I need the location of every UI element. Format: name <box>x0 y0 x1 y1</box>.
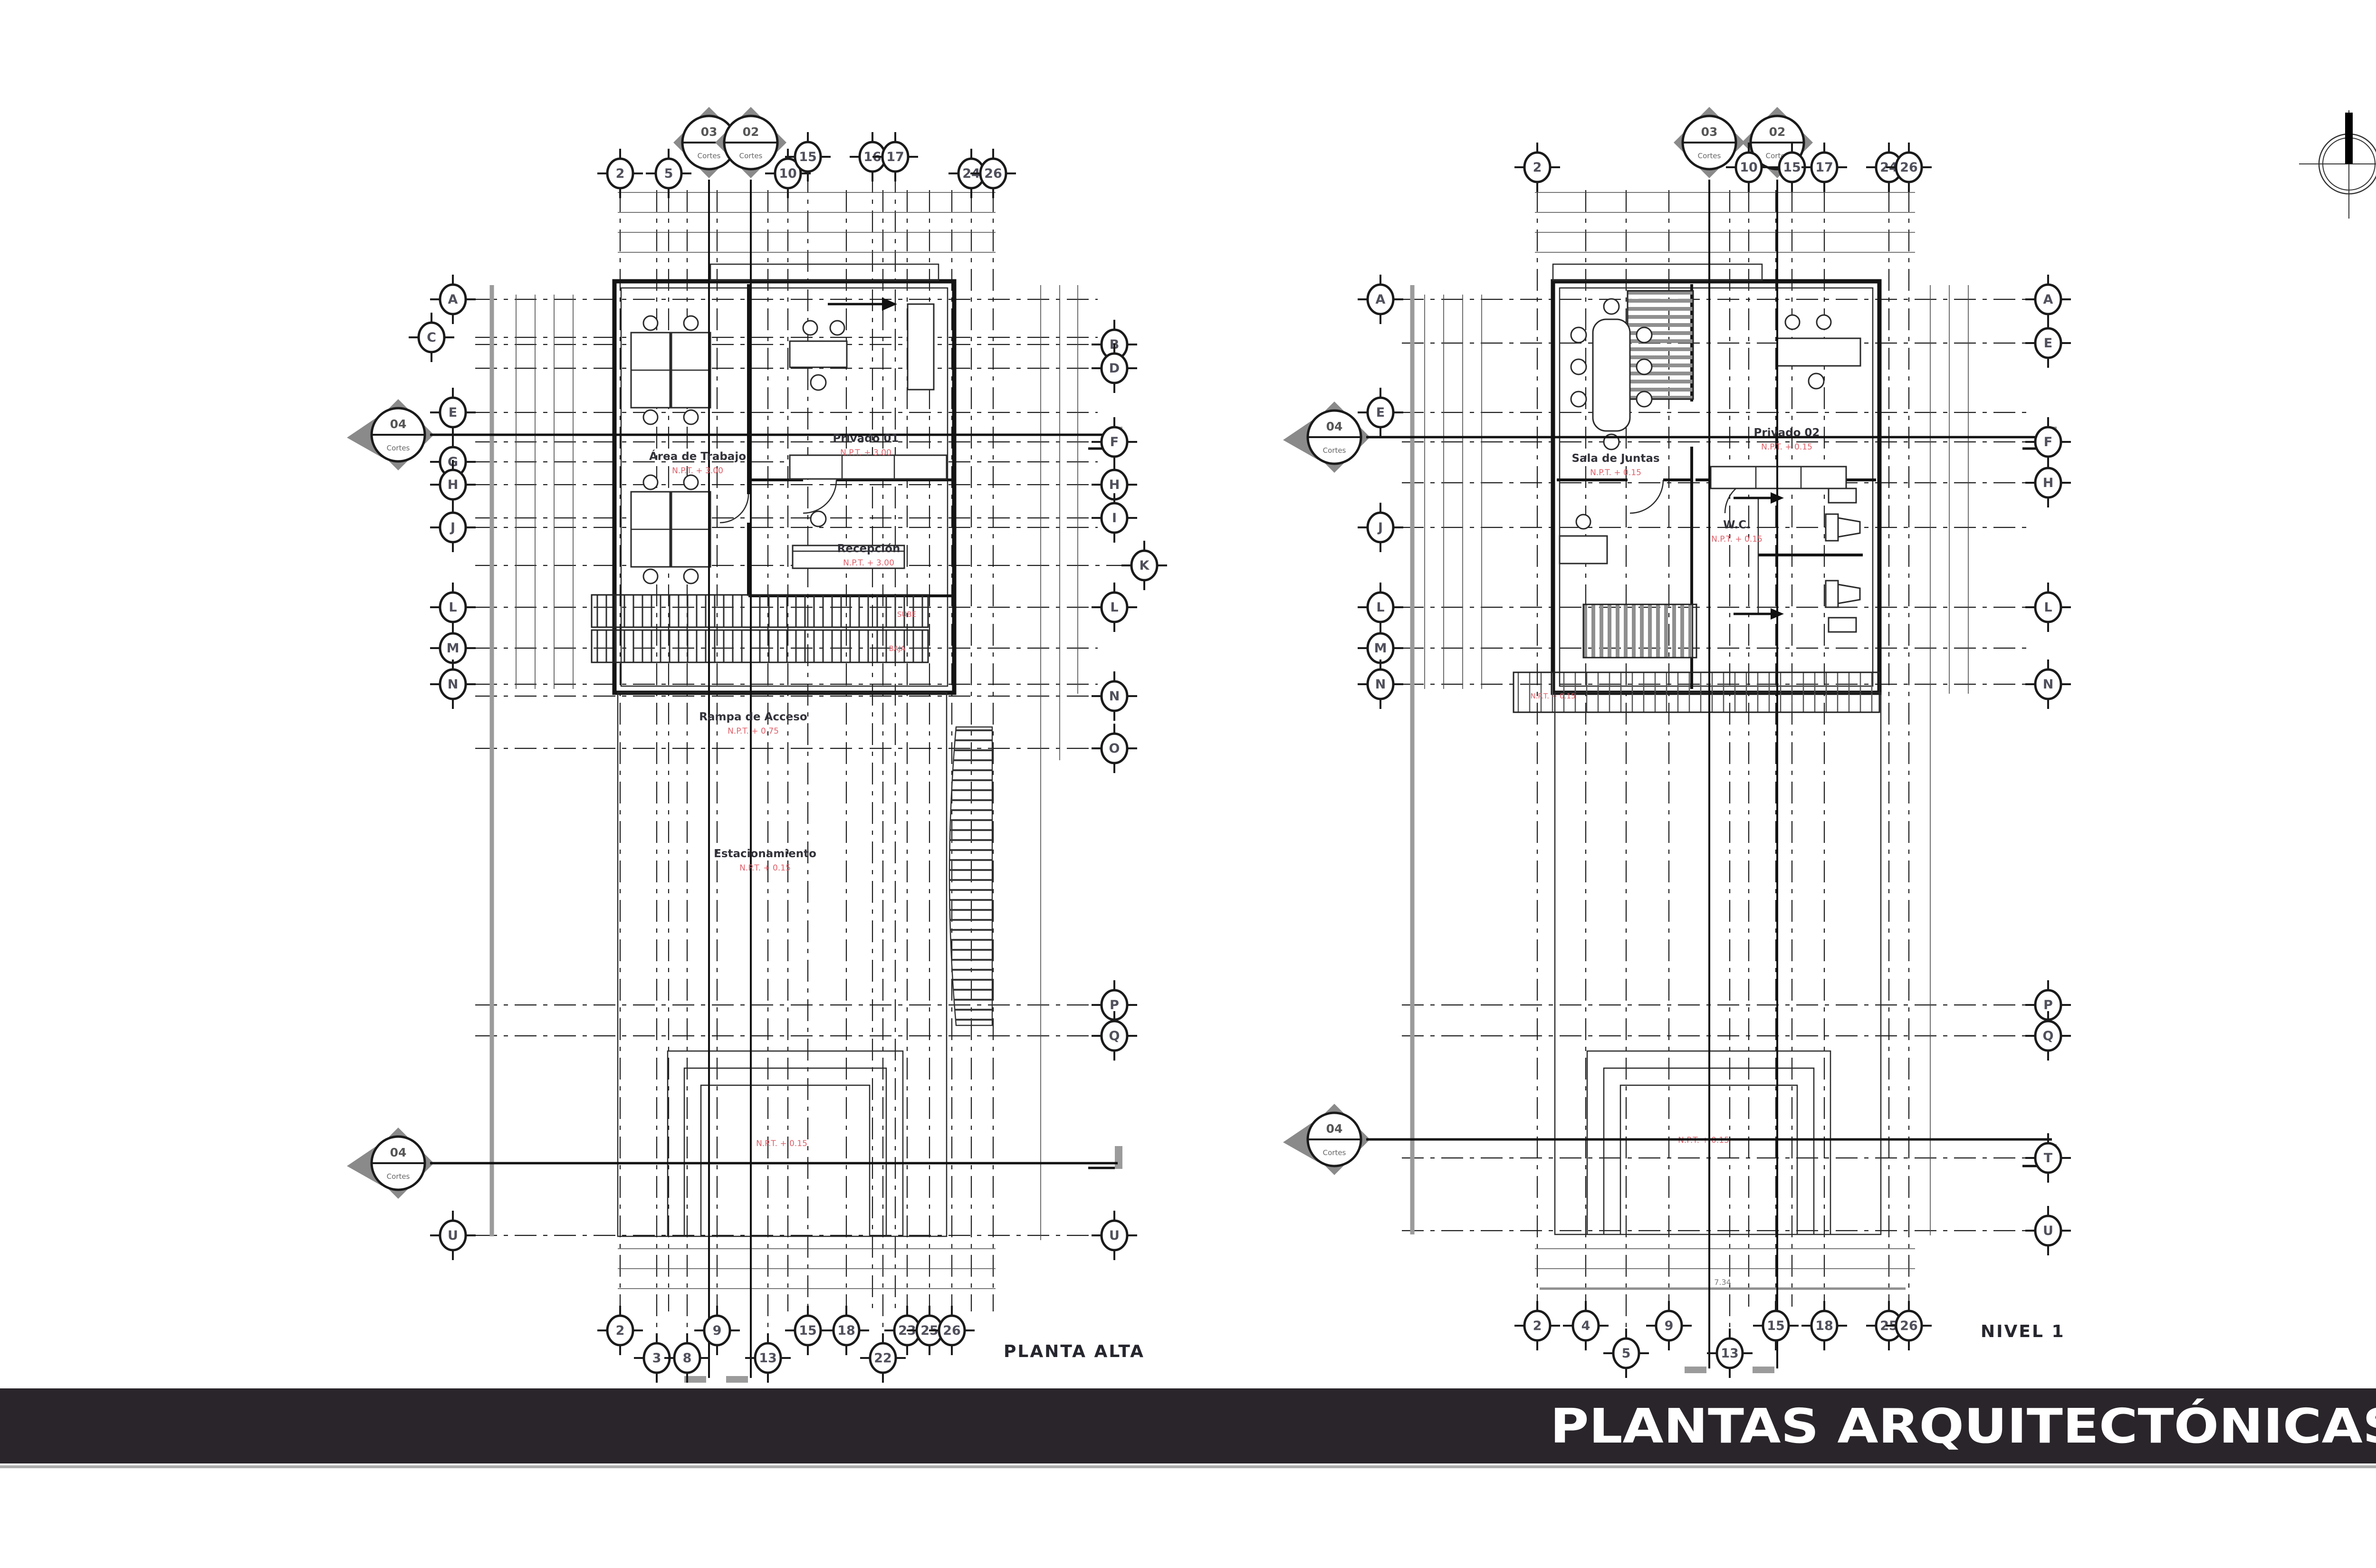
marker-sheet: Cortes <box>739 152 763 160</box>
svg-text:18: 18 <box>837 1323 855 1338</box>
plan-title-nivel-1: NIVEL 1 <box>1981 1322 2065 1341</box>
room-level: N.P.T. + 3.00 <box>840 448 891 458</box>
svg-text:5: 5 <box>1622 1346 1631 1361</box>
svg-text:15: 15 <box>1783 160 1801 175</box>
svg-text:L: L <box>1110 600 1118 615</box>
wc-fixtures <box>1826 488 1860 632</box>
title-banner: PLANTAS ARQUITECTÓNICAS <box>0 1388 2376 1468</box>
svg-text:O: O <box>1109 741 1120 756</box>
room-level: N.P.T. + 0.15 <box>1761 442 1812 452</box>
svg-text:F: F <box>2044 435 2052 449</box>
stair-upper <box>1628 291 1693 399</box>
svg-text:N: N <box>1375 677 1386 692</box>
svg-text:N: N <box>2043 677 2054 692</box>
office-desk <box>1560 515 1607 564</box>
dimension-lines: 7.34 <box>1425 192 1968 1289</box>
svg-text:13: 13 <box>759 1351 777 1366</box>
workstation <box>671 316 710 424</box>
svg-text:26: 26 <box>1900 1319 1918 1333</box>
room-name: Privado 02 <box>1754 427 1820 439</box>
grid-lines-horizontal <box>475 299 1131 1235</box>
roof-parapet-strip <box>1553 264 1762 280</box>
svg-text:Q: Q <box>1109 1029 1120 1043</box>
svg-text:15: 15 <box>799 150 817 164</box>
room-level: N.P.T. + 3.00 <box>672 466 723 476</box>
north-needle-icon <box>2345 113 2353 164</box>
svg-text:P: P <box>1110 998 1119 1013</box>
grid-bubbles-left: A E J L M N <box>1358 275 1403 709</box>
marker-number: 03 <box>701 125 718 139</box>
marker-number: 04 <box>1326 1122 1343 1136</box>
svg-text:L: L <box>1376 600 1384 615</box>
svg-text:A: A <box>2043 292 2053 307</box>
grid-bubbles-bottom: 2 4 5 9 13 15 18 25 26 <box>1514 1301 1932 1378</box>
marker-sheet: Cortes <box>698 152 721 160</box>
elevation-marker: 04 Cortes <box>1283 1104 1370 1175</box>
svg-text:8: 8 <box>683 1351 692 1366</box>
wall-corner-posts <box>2022 427 2057 1167</box>
svg-text:T: T <box>2044 1151 2053 1166</box>
svg-text:E: E <box>2044 336 2052 351</box>
svg-text:F: F <box>1110 435 1119 449</box>
banner-underline <box>0 1465 2376 1468</box>
room-level: N.P.T. + 0.15 <box>739 863 791 873</box>
drawing-sheet: SUBE BAJA N.P.T. + 0.15 <box>0 0 2376 1568</box>
patio-court: N.P.T. + 0.15 <box>1555 693 1881 1234</box>
marker-sheet: Cortes <box>1323 1148 1346 1157</box>
svg-text:J: J <box>450 520 455 535</box>
svg-text:18: 18 <box>1815 1319 1833 1333</box>
plan-nivel-1: 7.34 <box>1283 107 2071 1378</box>
svg-text:13: 13 <box>1721 1346 1739 1361</box>
patio-court: N.P.T. + 0.15 <box>618 693 947 1236</box>
marker-sheet: Cortes <box>1323 446 1346 455</box>
sheet-title: PLANTAS ARQUITECTÓNICAS <box>1550 1398 2376 1454</box>
north-compass <box>2299 110 2376 219</box>
room-level: N.P.T. + 0.15 <box>1590 468 1641 478</box>
svg-text:26: 26 <box>943 1323 961 1338</box>
marker-number: 04 <box>1326 420 1343 433</box>
louver-screen <box>949 727 992 1025</box>
svg-text:M: M <box>1374 641 1387 656</box>
svg-text:9: 9 <box>1665 1319 1674 1333</box>
svg-text:H: H <box>2043 476 2054 490</box>
svg-text:15: 15 <box>1767 1319 1785 1333</box>
svg-text:D: D <box>1109 361 1120 376</box>
room-name: Sala de Juntas <box>1571 452 1659 465</box>
section-cut-lines <box>1685 180 1777 1373</box>
grid-bubbles-right: B D F H I K L N O P Q U <box>1092 320 1167 1260</box>
svg-text:10: 10 <box>1740 160 1758 175</box>
svg-text:15: 15 <box>799 1323 817 1338</box>
architectural-plans-svg: SUBE BAJA N.P.T. + 0.15 <box>0 0 2376 1568</box>
svg-text:H: H <box>448 478 459 492</box>
room-name: Área de Trabajo <box>649 449 746 463</box>
grid-bubbles-right: A E F H L N P Q T U <box>2025 275 2071 1255</box>
elevation-marker: 04 Cortes <box>1283 402 1370 473</box>
marker-number: 02 <box>743 125 759 139</box>
svg-text:L: L <box>2044 600 2052 615</box>
svg-text:2: 2 <box>616 1323 625 1338</box>
svg-text:17: 17 <box>1815 160 1833 175</box>
marker-sheet: Cortes <box>1698 152 1721 160</box>
room-name: Rampa de Acceso <box>699 711 807 723</box>
svg-text:J: J <box>1377 520 1383 535</box>
door-swing <box>1630 480 1663 513</box>
ramp-up-label: SUBE <box>897 610 916 619</box>
room-name: W.C. <box>1723 519 1751 531</box>
ramp-down-label: BAJA <box>889 644 906 653</box>
svg-text:A: A <box>1376 292 1386 307</box>
svg-text:U: U <box>1109 1228 1120 1243</box>
marker-number: 04 <box>390 1146 407 1159</box>
dimension-value: 7.34 <box>1714 1278 1731 1287</box>
svg-text:C: C <box>427 330 436 345</box>
grid-bubbles-bottom: 2 3 8 9 13 15 18 22 23 25 26 <box>597 1306 975 1383</box>
svg-text:9: 9 <box>713 1323 722 1338</box>
room-name: Recepción <box>837 543 901 555</box>
wall-corner-posts <box>1088 427 1122 1169</box>
elevation-marker: 04 Cortes <box>347 1128 434 1199</box>
plan-title-planta-alta: PLANTA ALTA <box>1004 1342 1145 1361</box>
marker-sheet: Cortes <box>387 444 410 452</box>
svg-text:10: 10 <box>779 166 797 181</box>
privado-02-furniture <box>1711 315 1860 488</box>
room-level: N.P.T. + 0.75 <box>728 727 779 736</box>
svg-text:U: U <box>2043 1224 2053 1238</box>
patio-level-label: N.P.T. + 0.15 <box>756 1139 807 1148</box>
svg-text:26: 26 <box>1900 160 1918 175</box>
svg-text:2: 2 <box>1533 160 1542 175</box>
workstation <box>631 316 670 424</box>
svg-text:K: K <box>1140 558 1150 573</box>
grid-lines-horizontal <box>1402 299 2029 1231</box>
svg-text:M: M <box>447 641 460 656</box>
svg-text:P: P <box>2043 998 2053 1013</box>
svg-text:26: 26 <box>984 166 1002 181</box>
furniture <box>631 304 947 583</box>
workstation <box>631 475 670 583</box>
room-name: Estacionamiento <box>714 848 816 860</box>
svg-text:N: N <box>1109 689 1120 704</box>
roof-parapet-strip <box>710 264 939 280</box>
svg-text:N: N <box>448 677 459 692</box>
svg-text:H: H <box>1109 478 1120 492</box>
marker-sheet: Cortes <box>387 1172 410 1181</box>
room-name: Privado 01 <box>833 432 899 445</box>
stair-lower <box>1583 604 1696 658</box>
svg-text:2: 2 <box>1533 1319 1542 1333</box>
svg-text:22: 22 <box>874 1351 892 1366</box>
elevation-marker: 04 Cortes <box>347 399 434 470</box>
svg-text:2: 2 <box>616 166 625 181</box>
svg-text:I: I <box>1112 511 1117 526</box>
room-level: N.P.T. + 3.00 <box>843 558 894 568</box>
svg-text:17: 17 <box>886 150 904 164</box>
grid-bubbles-top: 2 5 10 15 16 17 24 26 <box>597 132 1016 198</box>
svg-text:L: L <box>449 600 457 615</box>
marker-number: 04 <box>390 417 407 431</box>
svg-text:E: E <box>1376 405 1385 420</box>
svg-text:A: A <box>448 292 458 307</box>
marker-number: 03 <box>1701 125 1718 139</box>
svg-text:E: E <box>449 405 457 420</box>
svg-text:Q: Q <box>2043 1029 2054 1043</box>
svg-text:4: 4 <box>1581 1319 1590 1333</box>
access-ramp: SUBE BAJA <box>592 595 928 662</box>
svg-text:5: 5 <box>664 166 673 181</box>
plan-planta-alta: SUBE BAJA N.P.T. + 0.15 <box>347 107 1167 1383</box>
room-level: N.P.T. + 0.15 <box>1711 535 1763 544</box>
workstation <box>671 475 710 583</box>
svg-text:U: U <box>448 1228 458 1243</box>
marker-number: 02 <box>1769 125 1786 139</box>
svg-text:3: 3 <box>652 1351 661 1366</box>
